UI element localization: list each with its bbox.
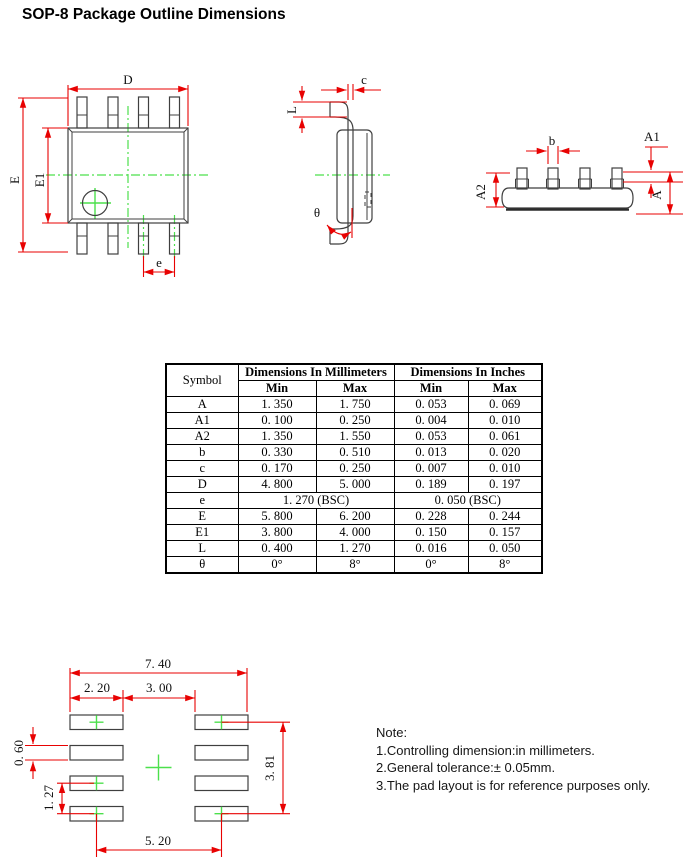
leads: [516, 168, 624, 189]
dim-label-A1: A1: [644, 129, 660, 144]
table-row: D4. 8005. 0000. 1890. 197: [166, 477, 542, 493]
dim-label-3-81: 3. 81: [262, 755, 277, 781]
package-body: [502, 188, 633, 210]
dim-label-c: c: [361, 72, 367, 87]
dim-label-theta: θ: [314, 205, 320, 220]
dimension-c: c: [321, 72, 381, 100]
dimension-e: e: [144, 255, 175, 277]
dim-label-A: A: [649, 190, 664, 200]
dimension-1-27: 1. 27: [41, 783, 94, 814]
table-row: E13. 8004. 0000. 1500. 157: [166, 525, 542, 541]
dimension-L: L: [284, 86, 347, 133]
dimension-0-60: 0. 60: [11, 727, 68, 779]
col-header-mm-max: Max: [316, 381, 394, 397]
note-item-2: 2.General tolerance:± 0.05mm.: [376, 759, 650, 777]
note-item-3: 3.The pad layout is for reference purpos…: [376, 777, 650, 795]
dim-label-e: e: [156, 255, 162, 270]
dim-label-E: E: [7, 176, 22, 184]
dim-label-5-20: 5. 20: [145, 833, 171, 848]
pad-center-crosses: [90, 715, 229, 821]
dim-label-1-27: 1. 27: [41, 785, 56, 812]
table-row: c0. 1700. 2500. 0070. 010: [166, 461, 542, 477]
dimensions-table: Symbol Dimensions In Millimeters Dimensi…: [165, 363, 543, 574]
notes-block: Note: 1.Controlling dimension:in millime…: [376, 724, 650, 794]
table-row: b0. 3300. 5100. 0130. 020: [166, 445, 542, 461]
table-row: A21. 3501. 5500. 0530. 061: [166, 429, 542, 445]
dim-label-L: L: [284, 106, 299, 114]
table-row: E5. 8006. 2000. 2280. 244: [166, 509, 542, 525]
col-header-mm-min: Min: [238, 381, 316, 397]
dimension-b: b: [526, 133, 580, 164]
col-header-mm: Dimensions In Millimeters: [238, 364, 394, 381]
package-body: [337, 130, 372, 223]
dimension-A1: A1: [623, 129, 683, 198]
table-header-row: Symbol Dimensions In Millimeters Dimensi…: [166, 364, 542, 381]
notes-heading: Note:: [376, 724, 650, 742]
dimension-2-20: 2. 20: [70, 680, 123, 712]
layout-center-cross: [146, 755, 172, 781]
dimension-theta: θ: [314, 205, 352, 238]
dim-label-7-40: 7. 40: [145, 656, 171, 671]
dimension-3-81: 3. 81: [222, 722, 291, 814]
table-row: A1. 3501. 7500. 0530. 069: [166, 397, 542, 413]
dim-label-b: b: [549, 133, 556, 148]
mold-mark: [365, 192, 371, 207]
datasheet-page: SOP-8 Package Outline Dimensions: [0, 0, 685, 863]
table-row: A10. 1000. 2500. 0040. 010: [166, 413, 542, 429]
dimension-5-20: 5. 20: [97, 814, 222, 857]
dim-label-A2: A2: [473, 184, 488, 200]
dim-label-3-00: 3. 00: [146, 680, 172, 695]
table-row: L0. 4001. 2700. 0160. 050: [166, 541, 542, 557]
table-row-e: e 1. 270 (BSC) 0. 050 (BSC): [166, 493, 542, 509]
dim-label-2-20: 2. 20: [84, 680, 110, 695]
package-side-view-drawing: c L θ: [285, 60, 400, 295]
col-header-symbol: Symbol: [166, 364, 238, 397]
dimension-3-00: 3. 00: [123, 680, 195, 712]
dimension-A: A: [636, 172, 683, 214]
pad-layout-drawing: 7. 40 2. 20 3. 00 0. 60 1. 27: [10, 650, 355, 863]
note-item-1: 1.Controlling dimension:in millimeters.: [376, 742, 650, 760]
table-row: θ0°8°0°8°: [166, 557, 542, 574]
dim-label-D: D: [123, 72, 132, 87]
col-header-in-max: Max: [468, 381, 542, 397]
dim-label-E1: E1: [32, 173, 47, 187]
dim-label-0-60: 0. 60: [11, 740, 26, 766]
package-end-view-drawing: b A1 A2 A: [440, 100, 685, 240]
package-top-view-drawing: D E E1 e: [10, 60, 235, 292]
col-header-inches: Dimensions In Inches: [394, 364, 542, 381]
page-title: SOP-8 Package Outline Dimensions: [22, 6, 286, 24]
col-header-in-min: Min: [394, 381, 468, 397]
